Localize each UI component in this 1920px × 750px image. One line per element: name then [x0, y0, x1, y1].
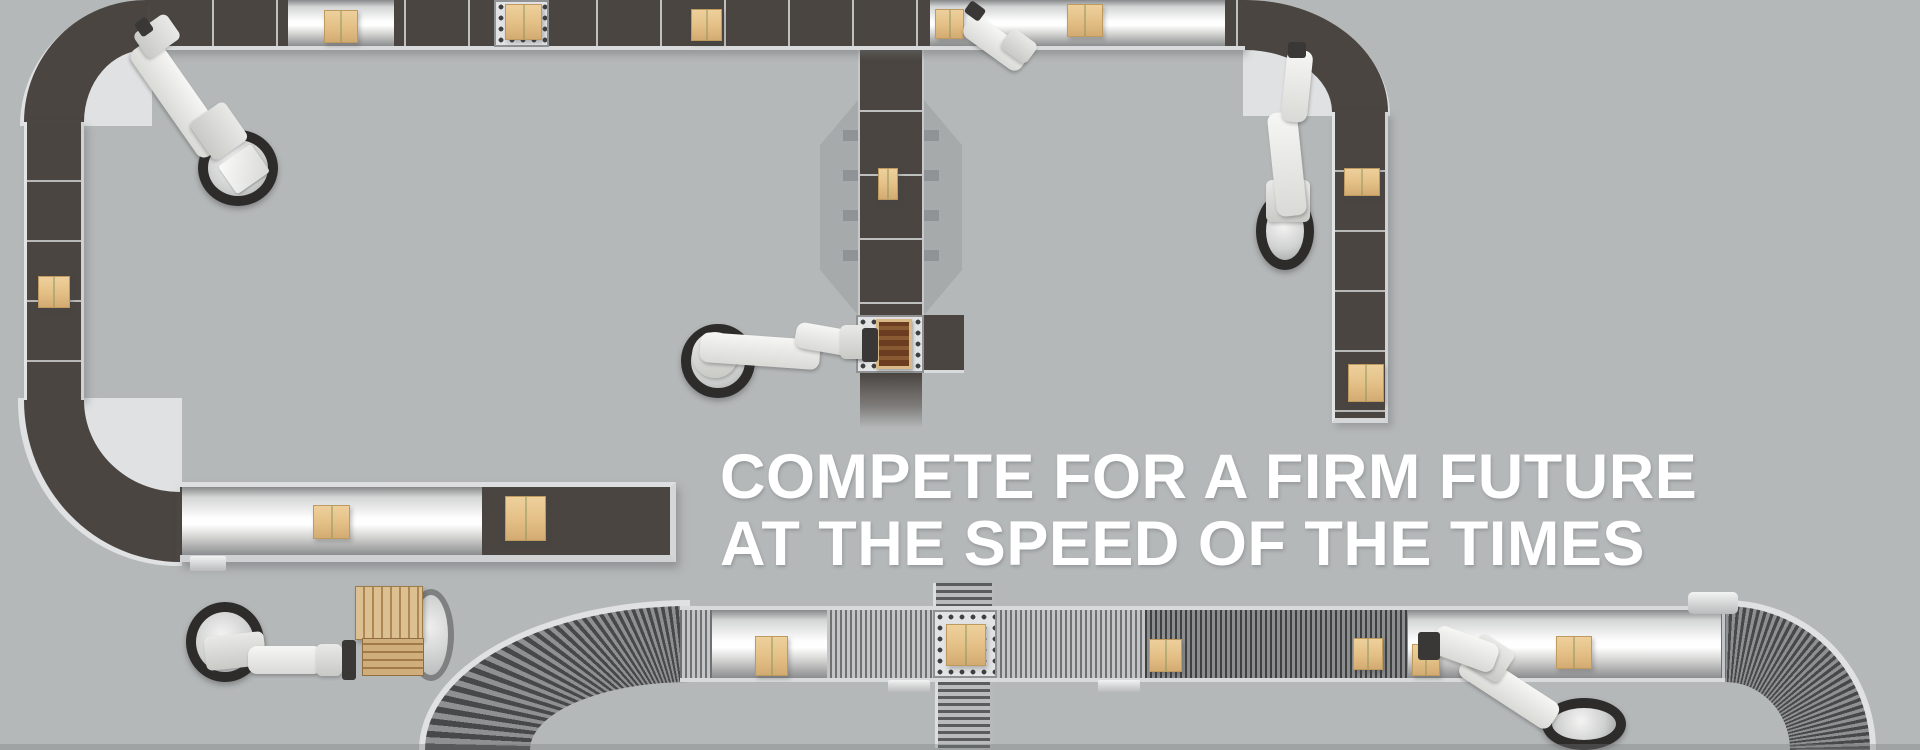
- cardboard-box: [935, 9, 964, 39]
- conveyor-corner-top-right: [1245, 0, 1388, 112]
- cardboard-box: [1556, 636, 1592, 669]
- junction-stub-bottom: [935, 682, 993, 748]
- headline-line-2: AT THE SPEED OF THE TIMES: [720, 511, 1697, 578]
- center-spur-belt-outfeed: [860, 373, 922, 428]
- hero-banner: COMPETE FOR A FIRM FUTURE AT THE SPEED O…: [0, 0, 1920, 750]
- robot-arm: [248, 646, 322, 674]
- conveyor-left: [24, 122, 84, 400]
- conveyor-sensor: [1688, 592, 1738, 614]
- cardboard-box: [1353, 638, 1383, 670]
- bottom-edge-shade: [0, 744, 1920, 750]
- cardboard-box: [1149, 639, 1182, 672]
- wood-plank-stack: [362, 638, 424, 676]
- cardboard-box: [1067, 4, 1103, 37]
- cardboard-box: [691, 9, 722, 41]
- cardboard-box: [946, 624, 986, 666]
- headline: COMPETE FOR A FIRM FUTURE AT THE SPEED O…: [720, 444, 1697, 578]
- shelf-panel-left: [820, 100, 858, 315]
- robot-gripper: [342, 640, 356, 680]
- cardboard-box: [505, 496, 546, 541]
- cardboard-box: [878, 168, 898, 200]
- robot-gripper: [1418, 632, 1440, 660]
- robot-wrist: [316, 644, 342, 676]
- shelf-brackets: [843, 130, 858, 285]
- loaded-pallet: [876, 319, 912, 369]
- robot-gripper: [862, 328, 878, 362]
- cardboard-box: [38, 276, 70, 308]
- headline-line-1: COMPETE FOR A FIRM FUTURE: [720, 444, 1697, 511]
- cardboard-box: [1348, 364, 1384, 402]
- cardboard-box: [755, 636, 788, 676]
- conveyor-foot: [1098, 680, 1140, 692]
- cardboard-box: [313, 505, 350, 539]
- cardboard-box: [324, 10, 358, 43]
- robot-gripper: [1288, 42, 1306, 58]
- conveyor-middle: [180, 482, 676, 562]
- wood-plank-stack: [355, 586, 423, 640]
- shelf-brackets: [924, 130, 939, 285]
- shelf-panel-right: [924, 100, 962, 315]
- conveyor-foot: [190, 556, 226, 571]
- cardboard-box: [505, 4, 542, 40]
- conveyor-corner-bottom-left: [24, 400, 180, 562]
- conveyor-foot: [888, 680, 930, 692]
- cardboard-box: [1344, 168, 1380, 196]
- center-junction-belt-patch: [924, 315, 964, 373]
